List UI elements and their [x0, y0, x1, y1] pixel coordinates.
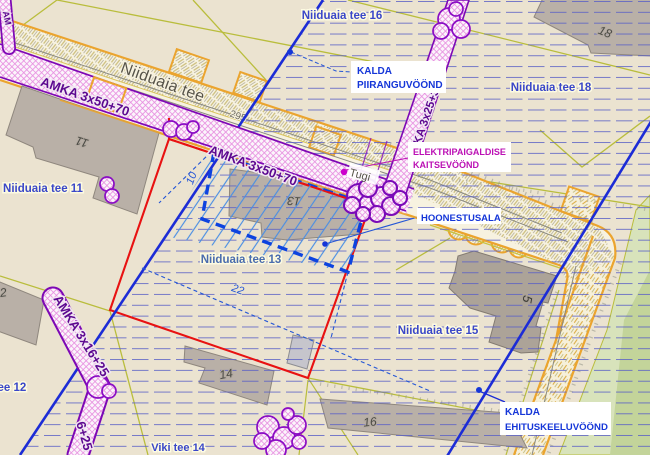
- svg-text:PIIRANGUVÖÖND: PIIRANGUVÖÖND: [357, 78, 443, 91]
- svg-text:Viki tee 14: Viki tee 14: [151, 442, 205, 454]
- svg-text:Niiduaia tee 15: Niiduaia tee 15: [398, 325, 479, 337]
- svg-text:14: 14: [218, 366, 234, 382]
- svg-text:HOONESTUSALA: HOONESTUSALA: [421, 213, 501, 224]
- svg-text:ELEKTRIPAIGALDISE: ELEKTRIPAIGALDISE: [413, 147, 506, 157]
- svg-text:Niiduaia tee 13: Niiduaia tee 13: [201, 254, 282, 266]
- svg-text:KAITSEVÖÖND: KAITSEVÖÖND: [413, 160, 480, 170]
- svg-text:16: 16: [363, 414, 378, 429]
- svg-text:EHITUSKEELUVÖÖND: EHITUSKEELUVÖÖND: [505, 422, 608, 433]
- svg-text:KALDA: KALDA: [357, 66, 392, 77]
- svg-text:KALDA: KALDA: [505, 407, 540, 418]
- svg-text:Niiduaia tee 11: Niiduaia tee 11: [3, 183, 84, 195]
- svg-text:Niiduaia tee 12: Niiduaia tee 12: [0, 382, 26, 394]
- svg-text:Niiduaia tee 18: Niiduaia tee 18: [511, 82, 592, 94]
- svg-text:Niiduaia tee 16: Niiduaia tee 16: [302, 10, 383, 22]
